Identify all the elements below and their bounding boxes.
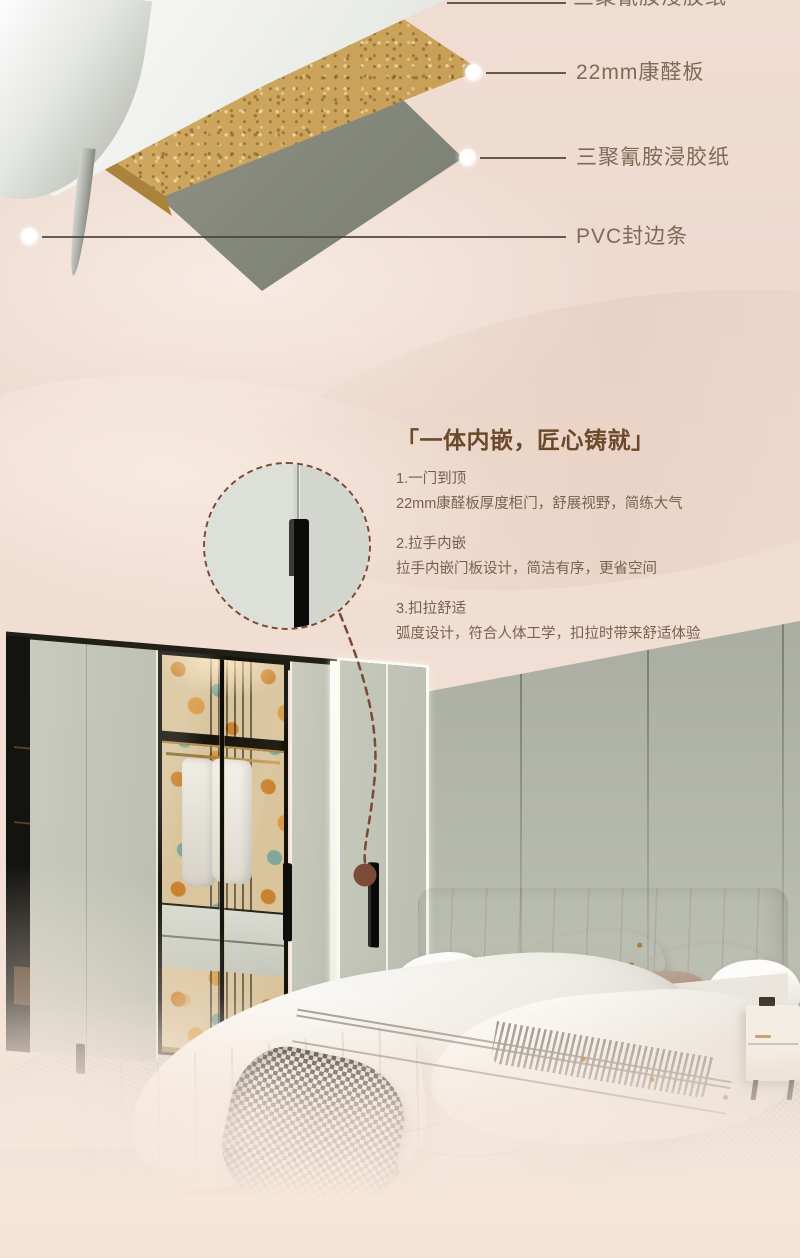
- feature-desc: 拉手内嵌门板设计，简洁有序，更省空间: [396, 557, 696, 582]
- bedroom-photo: [0, 615, 800, 1258]
- section-heading: 「一体内嵌，匠心铸就」: [396, 421, 696, 455]
- callout-line: [447, 2, 566, 4]
- feature-title: 1.一门到顶: [396, 467, 696, 492]
- feature-title: 2.拉手内嵌: [396, 532, 696, 557]
- callout-label: 三聚氰胺浸胶纸: [573, 0, 727, 11]
- door-gap-line: [297, 464, 299, 522]
- callout-line: [42, 236, 566, 238]
- feature-item: 1.一门到顶 22mm康醛板厚度柜门，舒展视野，简练大气: [396, 467, 696, 517]
- product-detail-page: 三聚氰胺浸胶纸 22mm康醛板 三聚氰胺浸胶纸 PVC封边条 「一体内嵌，匠心铸…: [0, 0, 800, 1258]
- callout-dot-icon: [459, 149, 476, 166]
- callout-dot-icon: [465, 64, 482, 81]
- callout-line: [480, 157, 566, 159]
- callout-label: PVC封边条: [576, 224, 688, 250]
- feature-desc: 22mm康醛板厚度柜门，舒展视野，简练大气: [396, 492, 696, 517]
- handle-notch: [289, 576, 294, 628]
- callout-label: 22mm康醛板: [576, 60, 704, 86]
- callout-dot-icon: [21, 228, 38, 245]
- feature-item: 2.拉手内嵌 拉手内嵌门板设计，简洁有序，更省空间: [396, 532, 696, 582]
- bottom-mist-fade-left: [0, 868, 320, 1148]
- magnified-door-detail: [205, 464, 369, 628]
- door-handle: [368, 862, 379, 948]
- handle-detail-magnifier: [203, 462, 371, 630]
- callout-line: [486, 72, 566, 74]
- callout-label: 三聚氰胺浸胶纸: [576, 145, 730, 171]
